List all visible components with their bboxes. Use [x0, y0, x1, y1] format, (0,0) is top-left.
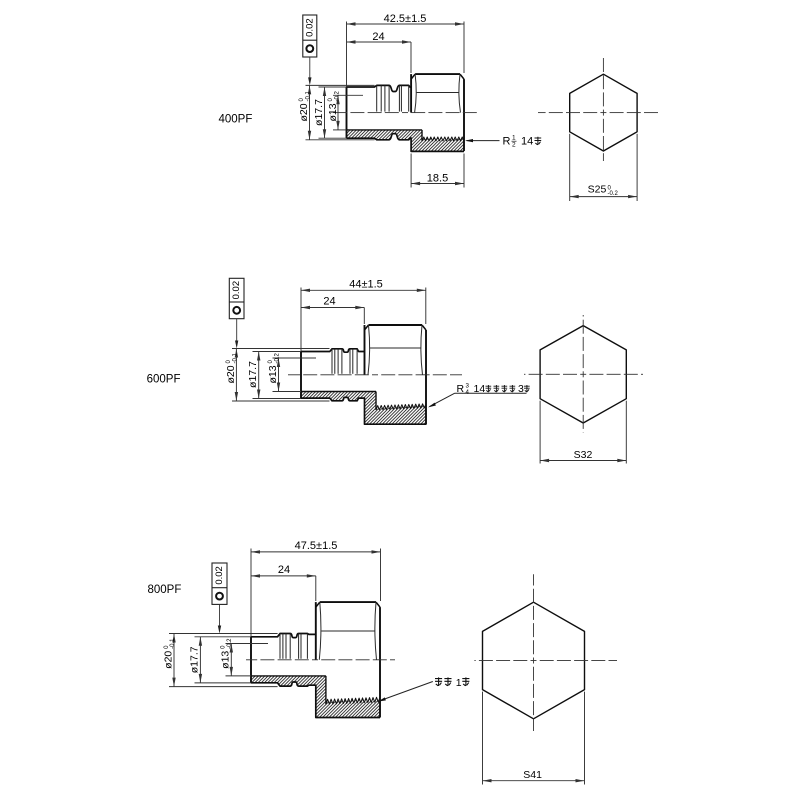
svg-text:2: 2: [512, 142, 516, 149]
svg-text:0.02: 0.02: [304, 18, 315, 36]
svg-text:ø17.7: ø17.7: [189, 646, 201, 673]
svg-text:R: R: [503, 136, 511, 148]
svg-text:0.02: 0.02: [214, 566, 225, 585]
svg-text:R: R: [457, 383, 465, 395]
svg-text:ø17.7: ø17.7: [313, 99, 325, 126]
svg-text:24: 24: [372, 31, 384, 43]
svg-text:600PF: 600PF: [147, 374, 181, 386]
svg-text:ø13: ø13: [267, 365, 279, 383]
svg-text:24: 24: [323, 296, 335, 308]
svg-text:S32: S32: [574, 449, 593, 461]
svg-text:400PF: 400PF: [219, 114, 253, 126]
svg-text:-0.1: -0.1: [170, 638, 176, 649]
svg-text:-0.2: -0.2: [608, 191, 619, 197]
svg-text:24: 24: [278, 564, 290, 576]
svg-text:S41: S41: [523, 769, 542, 781]
svg-text:42.5±1.5: 42.5±1.5: [384, 13, 427, 25]
svg-text:ø13: ø13: [220, 651, 232, 669]
svg-text:ø20: ø20: [163, 651, 175, 669]
svg-text:800PF: 800PF: [148, 584, 182, 596]
svg-text:44±1.5: 44±1.5: [349, 278, 383, 290]
svg-text:-0.2: -0.2: [274, 352, 280, 363]
svg-text:1: 1: [456, 677, 462, 689]
svg-text:47.5±1.5: 47.5±1.5: [295, 540, 338, 552]
svg-text:S25: S25: [588, 184, 607, 196]
svg-text:ø13: ø13: [327, 103, 339, 121]
svg-text:0.02: 0.02: [231, 281, 242, 300]
svg-text:-0.1: -0.1: [305, 90, 311, 101]
svg-text:-0.1: -0.1: [232, 352, 238, 363]
svg-text:-0.2: -0.2: [227, 638, 233, 649]
svg-text:14: 14: [474, 383, 486, 395]
svg-text:14: 14: [521, 136, 533, 148]
svg-text:3: 3: [518, 383, 524, 395]
svg-text:ø17.7: ø17.7: [247, 361, 259, 388]
svg-text:4: 4: [466, 389, 470, 396]
svg-text:ø20: ø20: [225, 365, 237, 383]
svg-text:-0.2: -0.2: [334, 90, 340, 101]
svg-text:ø20: ø20: [298, 103, 310, 121]
svg-text:1: 1: [512, 135, 516, 142]
svg-text:18.5: 18.5: [427, 173, 448, 185]
